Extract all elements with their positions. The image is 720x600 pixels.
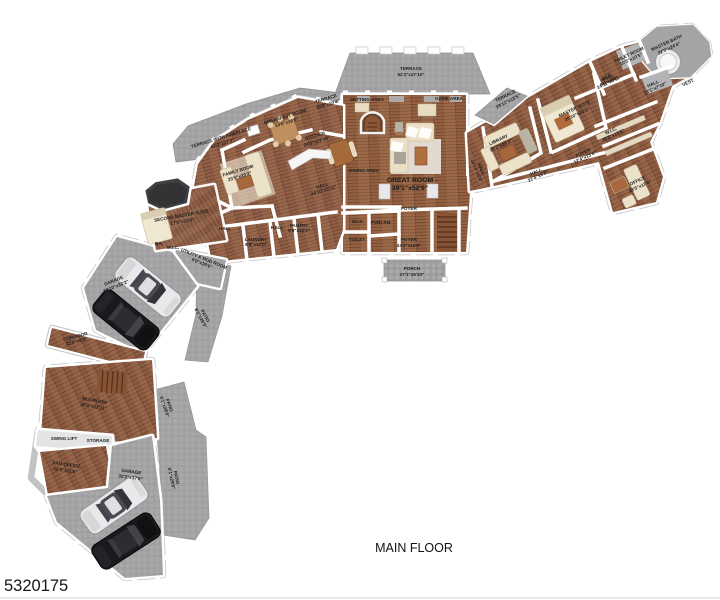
svg-text:SWING LIFT: SWING LIFT: [51, 436, 78, 441]
svg-text:BA.: BA.: [155, 241, 163, 246]
svg-text:W.I.C.: W.I.C.: [167, 245, 180, 250]
svg-text:39'1"x52'9": 39'1"x52'9": [392, 185, 428, 192]
svg-text:PORCH: PORCH: [404, 266, 421, 271]
svg-text:24'3"x16'9": 24'3"x16'9": [397, 243, 421, 248]
svg-text:52'2"x27'10": 52'2"x27'10": [398, 72, 425, 77]
svg-text:FOYER: FOYER: [401, 206, 418, 211]
svg-text:GAME AREA: GAME AREA: [435, 96, 464, 101]
svg-text:PWD RM: PWD RM: [371, 220, 390, 225]
svg-text:GREAT ROOM: GREAT ROOM: [387, 177, 434, 184]
svg-text:STORAGE: STORAGE: [87, 438, 110, 443]
svg-text:27'1"x9'10": 27'1"x9'10": [400, 272, 424, 277]
svg-text:W.I.C.: W.I.C.: [352, 219, 365, 224]
svg-text:HALL: HALL: [271, 225, 283, 230]
svg-text:9'9"x12'0": 9'9"x12'0": [288, 228, 310, 233]
svg-text:FOYER: FOYER: [401, 237, 418, 242]
svg-text:DINING AREA: DINING AREA: [349, 168, 380, 173]
svg-text:HALL: HALL: [219, 226, 231, 231]
svg-text:TERRACE: TERRACE: [400, 66, 422, 71]
svg-text:TOILET: TOILET: [349, 237, 365, 242]
svg-text:8'9"x12'0": 8'9"x12'0": [245, 242, 267, 247]
svg-text:SETTING AREA: SETTING AREA: [350, 97, 385, 102]
